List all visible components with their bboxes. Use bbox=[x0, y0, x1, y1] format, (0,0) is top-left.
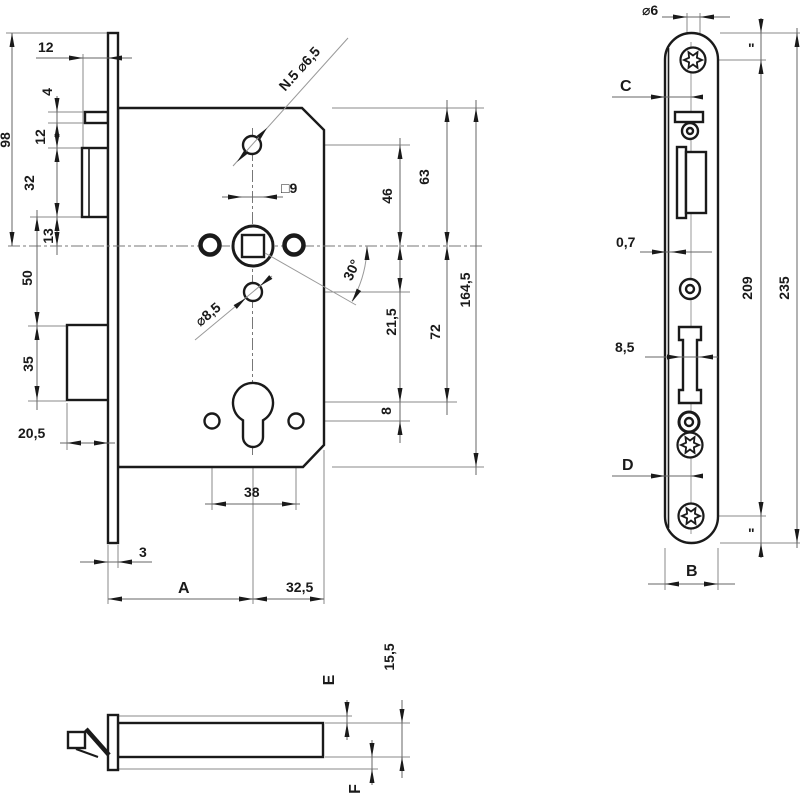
dim-center-to-back: 32,5 bbox=[286, 579, 313, 595]
dim-end-to-screw-bottom: " bbox=[748, 525, 755, 541]
technical-drawing-page: 12 4 12 32 13 50 35 20,5 98 3 A 32,5 38 … bbox=[0, 0, 800, 800]
dim-latch-to-center: 13 bbox=[40, 228, 56, 244]
faceplate-front-view: ⌀6 C 0,7 8,5 D B " " 209 235 bbox=[612, 2, 800, 590]
spindle-square-hole bbox=[242, 235, 264, 257]
deadbolt bbox=[67, 325, 110, 400]
dim-backset: A bbox=[178, 580, 190, 597]
dim-plate-width: B bbox=[686, 563, 698, 580]
aux-latch-bolt bbox=[85, 112, 108, 123]
dim-edge-to-center-bottom: D bbox=[622, 457, 634, 474]
latch-bevel bbox=[86, 729, 109, 755]
dim-bolt-slot-width: 8,5 bbox=[615, 339, 635, 355]
dim-bolt-height: 35 bbox=[20, 356, 36, 372]
mortise-lock-drawing: 12 4 12 32 13 50 35 20,5 98 3 A 32,5 38 … bbox=[0, 0, 800, 800]
dim-case-depth: 15,5 bbox=[381, 643, 397, 670]
label-spindle-square: □9 bbox=[281, 180, 297, 196]
main-view: 12 4 12 32 13 50 35 20,5 98 3 A 32,5 38 … bbox=[0, 33, 484, 604]
aux-latch-window bbox=[675, 112, 703, 122]
lock-case bbox=[67, 33, 324, 543]
cylinder-screw-hole-left bbox=[205, 414, 220, 429]
dim-cyl-hole-offset: 8 bbox=[378, 407, 394, 415]
latch-window bbox=[686, 152, 706, 213]
screw-hole-mid-icon bbox=[678, 433, 703, 458]
side-view: E 15,5 F bbox=[68, 643, 410, 794]
dim-screw-diameter: ⌀6 bbox=[642, 2, 658, 18]
dim-center-to-cylinder: 72 bbox=[427, 324, 443, 340]
dim-aux-latch-height: 4 bbox=[39, 88, 55, 96]
dim-case-offset-bottom: F bbox=[347, 784, 364, 794]
dim-case-offset-top: E bbox=[321, 674, 338, 685]
dim-plate-top-to-center: 98 bbox=[0, 132, 13, 148]
screw-hole-top-icon bbox=[681, 48, 706, 73]
dim-screw-spacing: 209 bbox=[739, 276, 755, 300]
lock-case-side bbox=[118, 723, 323, 757]
latch-window-step bbox=[677, 147, 686, 218]
dim-edge-to-center-top: C bbox=[620, 78, 632, 95]
follower-screw-left bbox=[201, 236, 220, 255]
dim-plate-length: 235 bbox=[776, 276, 792, 300]
follower-screw-right bbox=[285, 236, 304, 255]
faceplate-side bbox=[108, 715, 118, 770]
dim-center-to-hole: 21,5 bbox=[383, 308, 399, 335]
faceplate-edge bbox=[108, 33, 118, 543]
dim-plate-thickness: 3 bbox=[139, 544, 147, 560]
dim-latch-to-bolt: 50 bbox=[19, 270, 35, 286]
screw-hole-bottom-icon bbox=[679, 504, 704, 529]
dim-latch-protrusion: 12 bbox=[38, 39, 54, 55]
side-dimension-lines bbox=[345, 700, 405, 785]
latch-tip bbox=[68, 732, 85, 748]
dim-cyl-screw-spacing: 38 bbox=[244, 484, 260, 500]
dim-latch-height: 32 bbox=[21, 175, 37, 191]
label-angle: 30° bbox=[340, 257, 363, 283]
latch-bolt-side bbox=[68, 729, 109, 757]
side-dimension-labels: E 15,5 F bbox=[321, 643, 397, 794]
dim-case-height: 164,5 bbox=[457, 272, 473, 307]
cylinder-screw-hole-right bbox=[289, 414, 304, 429]
latch-bolt bbox=[82, 148, 108, 217]
dim-top-to-center: 63 bbox=[416, 169, 432, 185]
dim-plate-offset: 0,7 bbox=[616, 234, 636, 250]
label-top-hole-note: N.5 ⌀6,5 bbox=[275, 43, 323, 94]
dim-end-to-screw-top: " bbox=[748, 40, 755, 56]
deadbolt-window bbox=[679, 327, 701, 403]
dim-aux-to-latch: 12 bbox=[32, 129, 48, 145]
dim-bolt-protrusion: 20,5 bbox=[18, 425, 45, 441]
dim-hole-to-center: 46 bbox=[379, 188, 395, 204]
